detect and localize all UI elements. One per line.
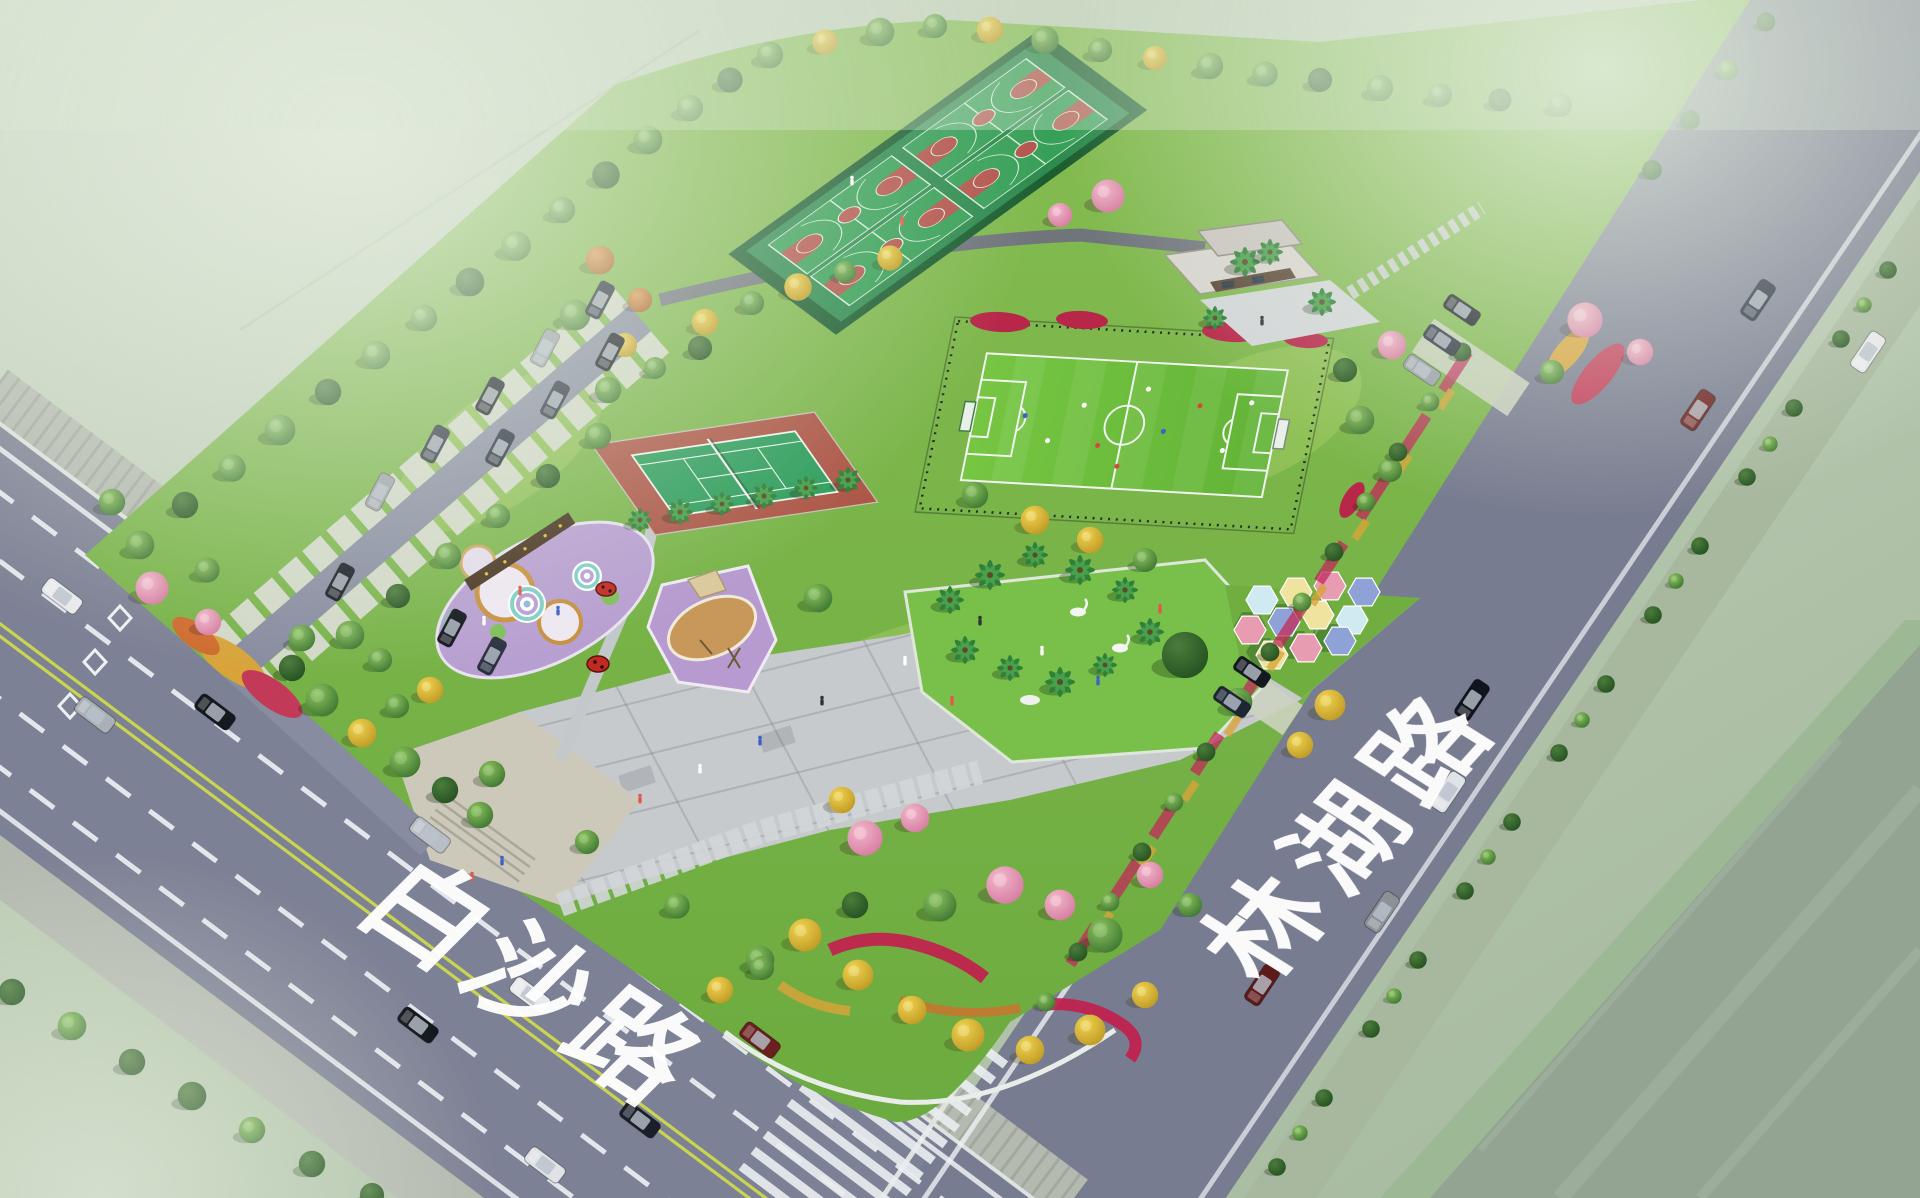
scene-canvas: 白沙路 林湖路 bbox=[0, 0, 1920, 1198]
haze-top bbox=[0, 0, 1920, 130]
person bbox=[1096, 676, 1100, 686]
sculpture bbox=[1020, 695, 1040, 705]
person bbox=[758, 736, 762, 746]
person bbox=[500, 856, 504, 866]
person bbox=[698, 764, 702, 774]
park-aerial-rendering: 白沙路 林湖路 bbox=[0, 0, 1920, 1198]
person bbox=[820, 696, 824, 706]
person bbox=[1158, 604, 1162, 614]
person bbox=[950, 696, 954, 706]
person bbox=[638, 794, 642, 804]
